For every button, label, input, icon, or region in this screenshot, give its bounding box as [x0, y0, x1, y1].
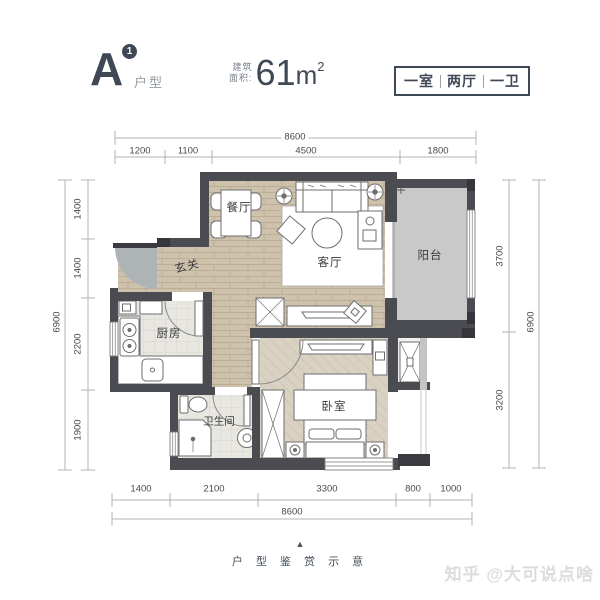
dim-left-seg: 1900	[73, 416, 84, 443]
pointer-up-icon: ▲	[0, 540, 600, 549]
tag-divider	[483, 75, 484, 88]
tag-rooms: 一室	[404, 71, 434, 91]
area-unit: m2	[296, 62, 325, 88]
dim-left-seg: 1400	[73, 195, 84, 222]
tag-halls: 两厅	[447, 71, 477, 91]
entry-door-leaf	[113, 243, 157, 248]
bedroom-door-leaf	[252, 340, 259, 384]
unit-number-badge: 1	[122, 44, 137, 59]
balcony-window	[467, 210, 475, 298]
dim-right-seg: 3700	[495, 242, 506, 269]
kitchen-window	[110, 322, 118, 356]
fridge	[140, 301, 162, 314]
tag-divider	[440, 75, 441, 88]
label-bedroom: 卧室	[322, 398, 347, 414]
tag-baths: 一卫	[490, 71, 520, 91]
toilet	[189, 397, 207, 412]
pillow	[336, 429, 361, 439]
dim-top-seg: 1200	[126, 146, 153, 157]
dim-bottom-seg: 1400	[127, 484, 154, 495]
dim-left-seg: 1400	[73, 254, 84, 281]
kitchen-door-leaf	[195, 301, 203, 336]
dim-bottom-seg: 3300	[313, 484, 340, 495]
dim-left-seg: 2200	[73, 330, 84, 357]
label-bathroom: 卫生间	[203, 414, 235, 429]
dim-top-total: 8600	[281, 132, 308, 143]
dim-bottom-seg: 2100	[200, 484, 227, 495]
area-label: 建筑 面积:	[229, 62, 253, 84]
watermark: 知乎 @大可说点啥	[445, 560, 594, 585]
pillow	[309, 429, 334, 439]
dim-bottom-seg: 800	[402, 484, 424, 495]
floor-plan-page: A 1 户型 建筑 面积: 61 m2 一室 两厅 一卫 餐厅 客厅 阳台 玄关…	[0, 0, 600, 600]
footer-caption-text: 户 型 鉴 赏 示 意	[232, 553, 368, 569]
tv	[308, 344, 364, 350]
label-living: 客厅	[318, 254, 343, 270]
bathroom-door-leaf	[244, 395, 250, 426]
layout-tags: 一室 两厅 一卫	[394, 66, 530, 96]
coffee-table	[312, 218, 342, 248]
unit-title: A 1 户型	[90, 46, 123, 92]
dim-top-seg: 1800	[424, 146, 451, 157]
dim-left-total: 6900	[52, 308, 63, 335]
label-balcony: 阳台	[418, 247, 443, 263]
dim-right-total: 6900	[526, 308, 537, 335]
label-kitchen: 厨房	[157, 325, 182, 341]
unit-letter: A	[90, 43, 123, 95]
outer-boundary-lines	[421, 390, 426, 454]
building-area: 建筑 面积: 61 m2	[229, 58, 324, 88]
dim-bottom-seg: 1000	[437, 484, 464, 495]
dim-top-seg: 1100	[175, 146, 201, 157]
bathroom-window	[170, 432, 178, 456]
unit-type-label: 户型	[134, 72, 164, 91]
dim-bottom-total: 8600	[278, 507, 305, 518]
label-dining: 餐厅	[227, 199, 252, 215]
headboard	[306, 442, 364, 458]
bedroom-window	[325, 458, 393, 470]
area-value: 61	[256, 58, 296, 88]
dim-top-seg: 4500	[292, 146, 319, 157]
toilet-tank	[180, 396, 188, 413]
dim-right-seg: 3200	[495, 386, 506, 413]
